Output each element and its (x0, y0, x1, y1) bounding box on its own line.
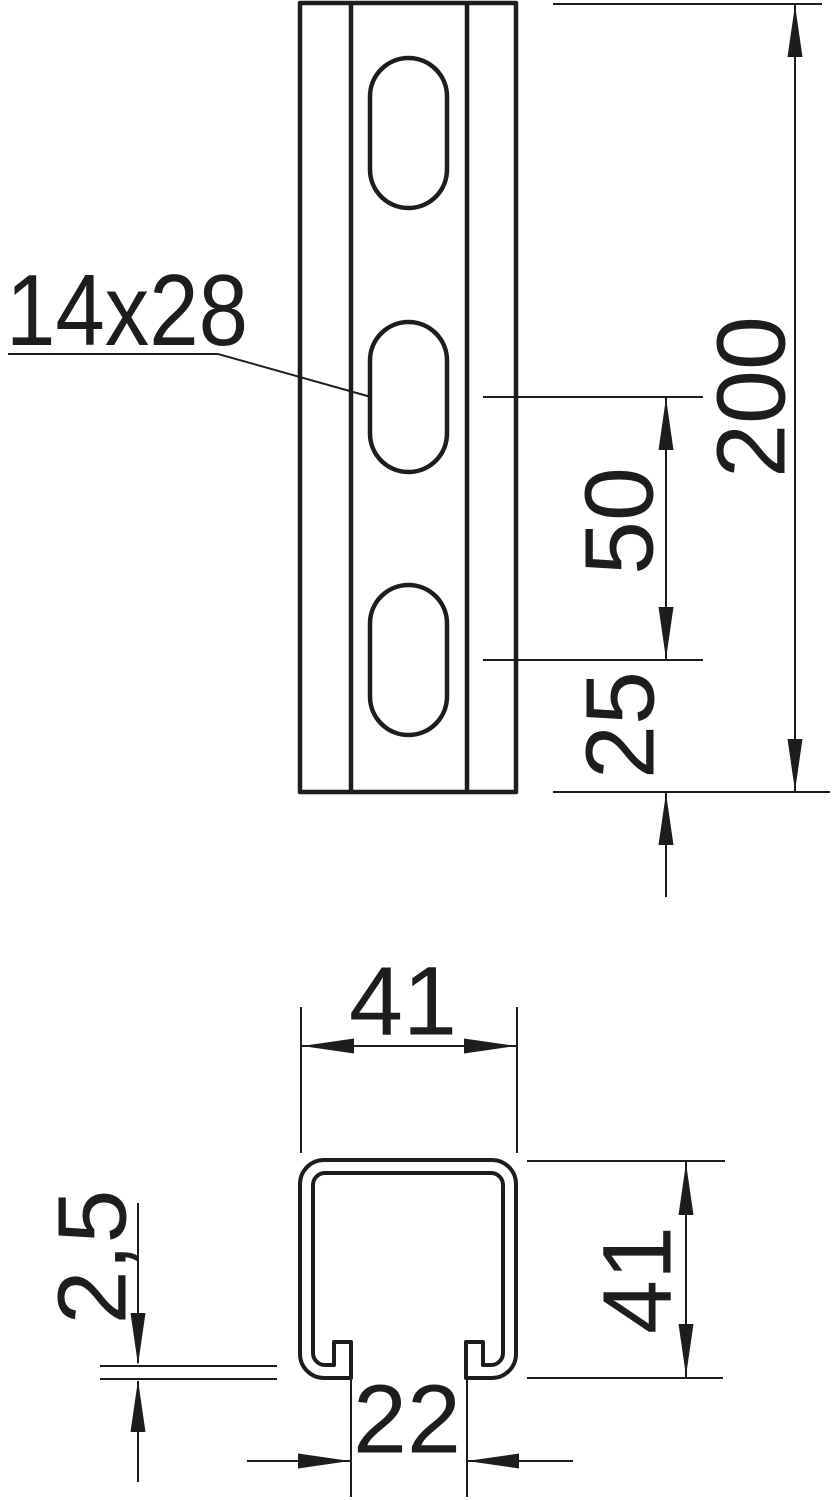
dimension-slot-pitch: 50 (565, 398, 674, 659)
drawing-canvas: 14x28 50 25 200 (0, 0, 832, 1500)
arrowhead-left (302, 1039, 354, 1054)
slot-hole-middle (370, 322, 447, 472)
dimension-opening-width: 22 (247, 1365, 573, 1498)
dimension-text-22: 22 (353, 1365, 461, 1474)
dimension-text-200: 200 (697, 316, 806, 478)
arrowhead-up (131, 1380, 146, 1432)
arrowhead-up (659, 793, 674, 845)
dimension-profile-height: 41 (527, 1161, 725, 1378)
dimension-text-50: 50 (565, 467, 674, 575)
dimension-text-25: 25 (566, 671, 675, 779)
dimension-profile-width: 41 (301, 947, 517, 1154)
dimension-end-offset: 25 (566, 671, 675, 897)
arrowhead-down (788, 739, 803, 791)
c-profile-outline (300, 1160, 516, 1378)
slot-size-label: 14x28 (6, 255, 248, 367)
arrowhead-left (467, 1454, 519, 1469)
dimension-text-41-width: 41 (349, 947, 457, 1056)
dimension-text-2-5: 2,5 (38, 1190, 147, 1325)
technical-drawing: 14x28 50 25 200 (0, 0, 832, 1500)
arrowhead-down (659, 607, 674, 659)
front-view: 14x28 50 25 200 (6, 3, 830, 897)
arrowhead-up (679, 1163, 694, 1215)
arrowhead-up (788, 5, 803, 57)
dimension-wall-thickness: 2,5 (38, 1190, 278, 1482)
arrowhead-up (659, 398, 674, 450)
dimension-text-41-height: 41 (583, 1226, 692, 1334)
arrowhead-right (464, 1039, 516, 1054)
section-view: 41 2,5 41 22 (38, 947, 726, 1498)
arrowhead-right (298, 1454, 350, 1469)
slot-hole-top (370, 58, 447, 208)
slot-hole-bottom (370, 585, 447, 735)
dimension-overall-length: 200 (697, 5, 806, 791)
